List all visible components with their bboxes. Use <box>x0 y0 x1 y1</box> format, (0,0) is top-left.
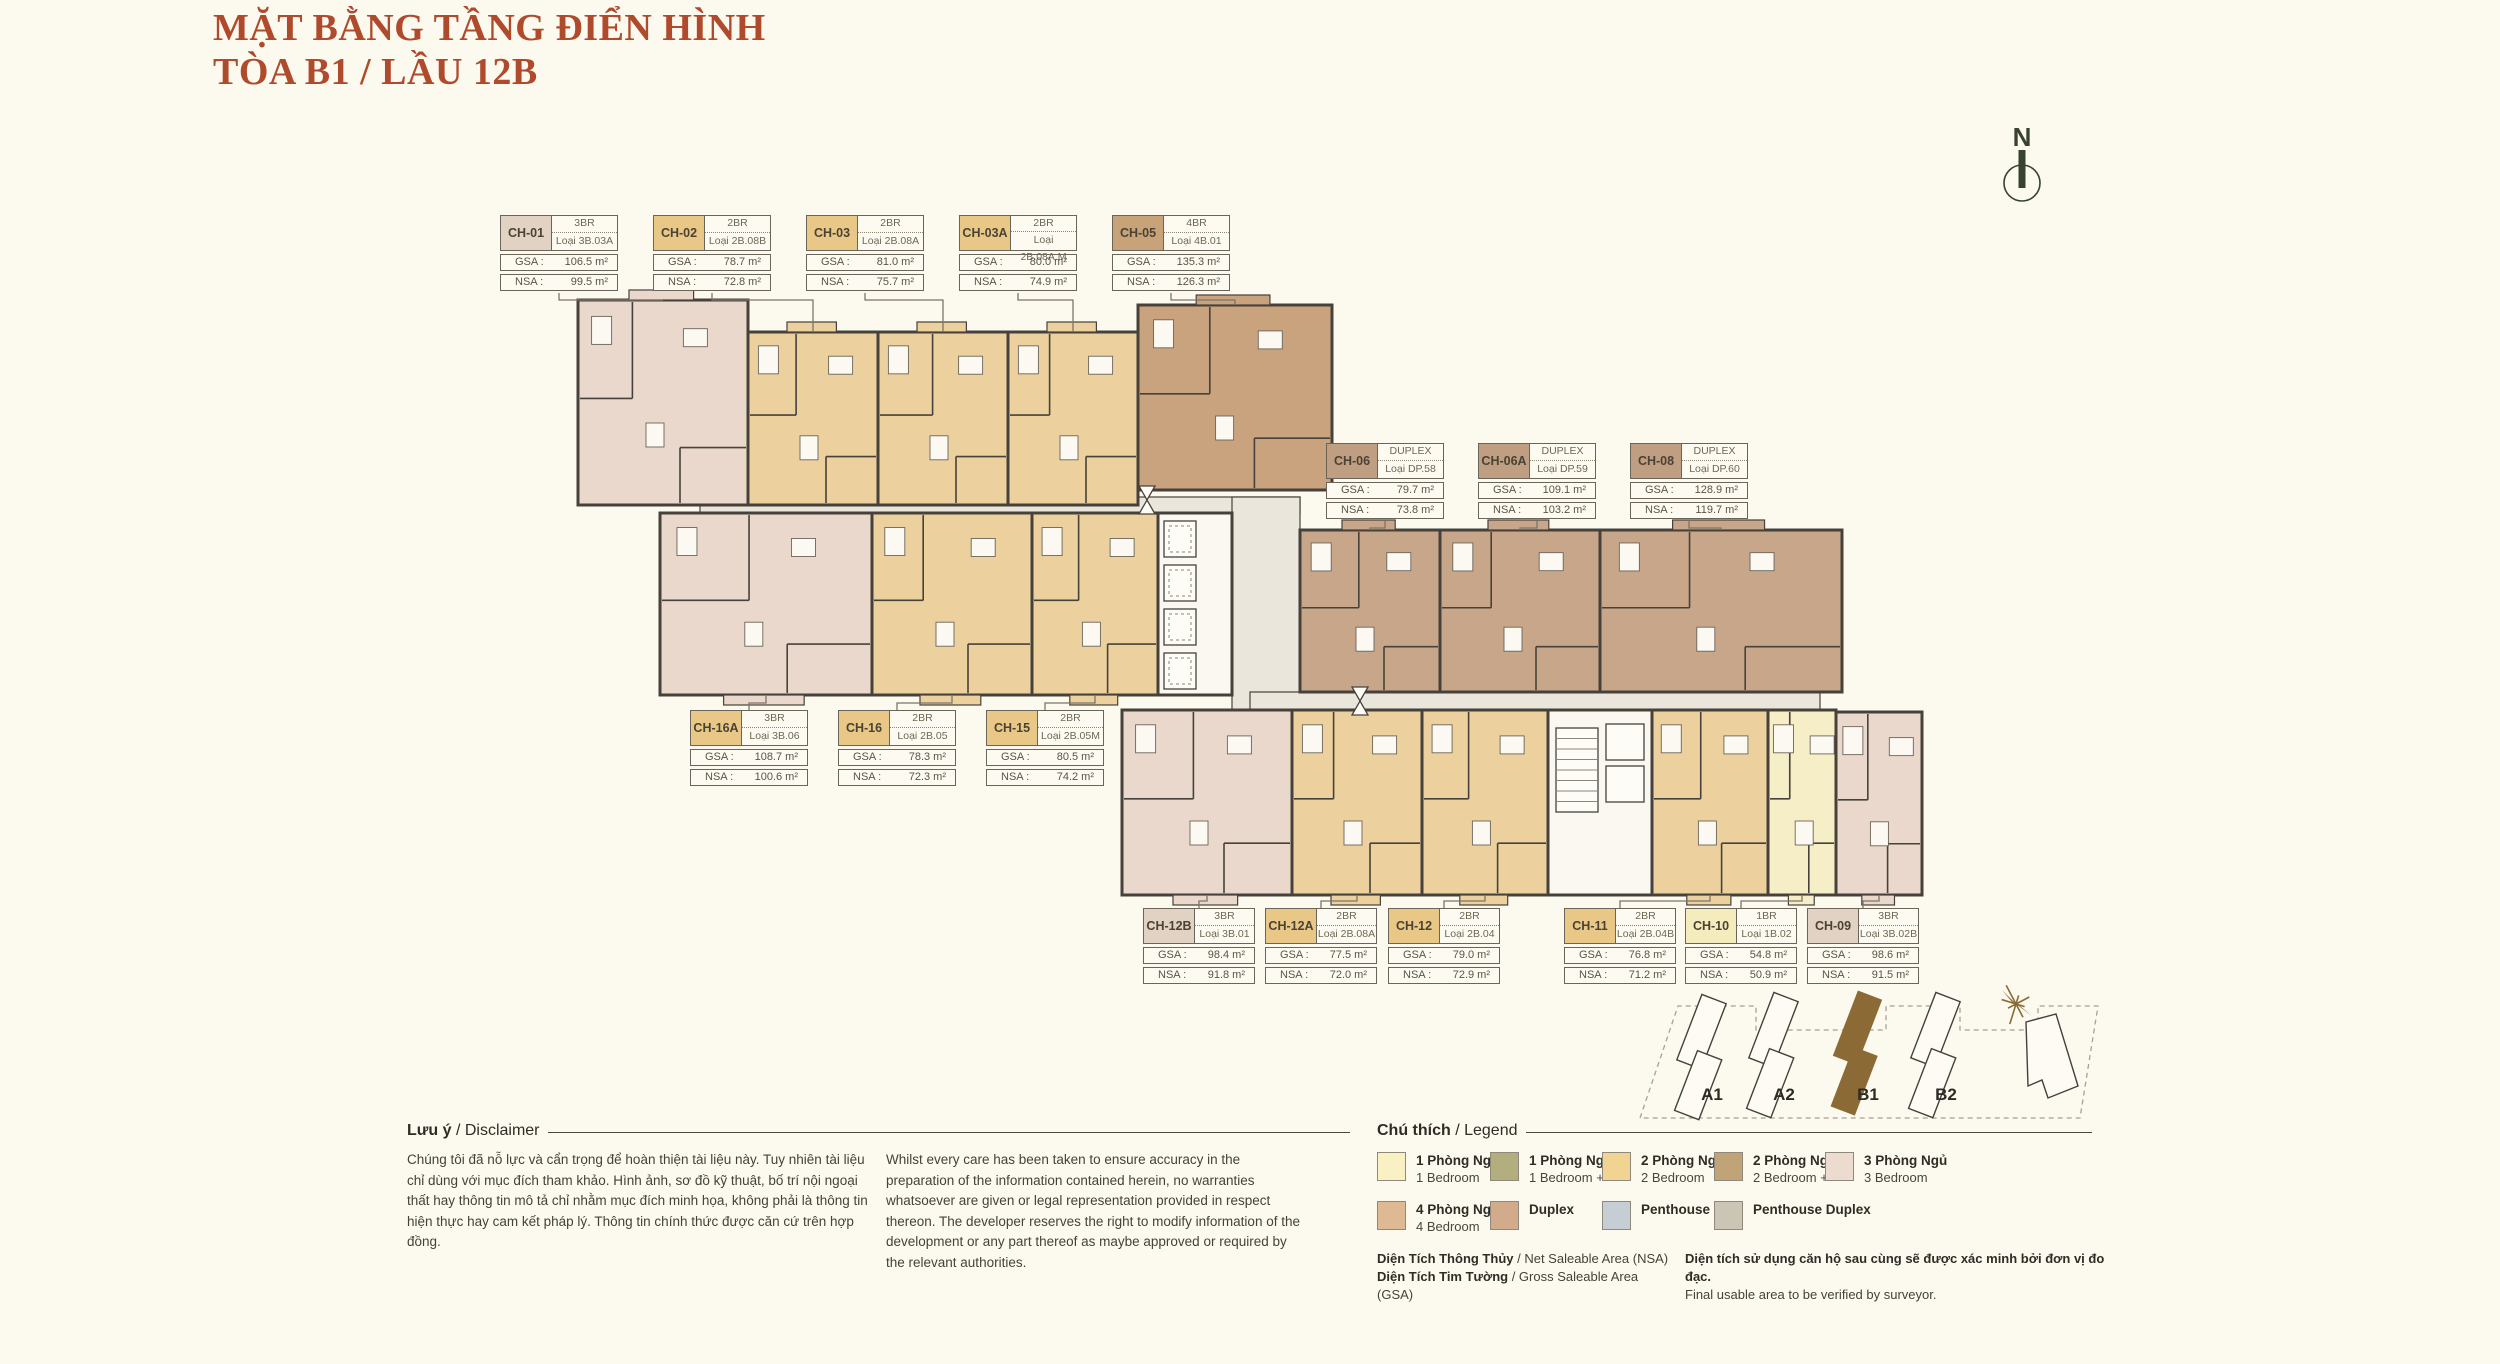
unit-CH-12 <box>1422 710 1548 905</box>
unit-CH-06 <box>1300 520 1440 692</box>
north-label: N <box>2013 122 2032 152</box>
nsa-row: NSA :91.8 m² <box>1143 967 1255 984</box>
disclaimer-title-vn: Lưu ý <box>407 1122 451 1139</box>
unit-card-CH-16: CH-16 2BR Loại 2B.05 GSA :78.3 m² NSA :7… <box>838 710 956 789</box>
card-header: CH-12B 3BR Loại 3B.01 <box>1143 908 1255 944</box>
unit-loai: Loại 2B.05 <box>890 728 955 745</box>
gsa-row: GSA :54.8 m² <box>1685 947 1797 964</box>
legend-item-penthouse-duplex: Penthouse Duplex <box>1714 1201 1871 1230</box>
unit-type: 1BR <box>1737 909 1796 926</box>
unit-id: CH-16 <box>839 711 890 745</box>
unit-id: CH-09 <box>1808 909 1859 943</box>
gsa-value: 109.1 m² <box>1543 483 1586 498</box>
unit-id: CH-15 <box>987 711 1038 745</box>
disclaimer-title-en: / Disclaimer <box>456 1122 540 1139</box>
legend-swatch <box>1490 1201 1519 1230</box>
unit-card-CH-12B: CH-12B 3BR Loại 3B.01 GSA :98.4 m² NSA :… <box>1143 908 1255 987</box>
unit-CH-09 <box>1836 712 1922 905</box>
unit-id: CH-16A <box>691 711 742 745</box>
unit-card-CH-01: CH-01 3BR Loại 3B.03A GSA :106.5 m² NSA … <box>500 215 618 294</box>
legend-label: Penthouse <box>1641 1201 1710 1230</box>
legend-swatch <box>1714 1152 1743 1181</box>
nsa-row: NSA :72.3 m² <box>838 769 956 786</box>
unit-id: CH-10 <box>1686 909 1737 943</box>
unit-type: DUPLEX <box>1378 444 1443 461</box>
gsa-value: 79.7 m² <box>1397 483 1434 498</box>
gsa-row: GSA :98.6 m² <box>1807 947 1919 964</box>
gsa-value: 78.3 m² <box>909 750 946 765</box>
legend-item-2-phòng-ngủ: 2 Phòng Ngủ2 Bedroom <box>1602 1152 1724 1187</box>
unit-loai: Loại 3B.06 <box>742 728 807 745</box>
legend-item-penthouse: Penthouse <box>1602 1201 1710 1230</box>
nsa-term: Diện Tích Thông Thủy <box>1377 1251 1514 1266</box>
nsa-row: NSA :74.2 m² <box>986 769 1104 786</box>
gsa-row: GSA :78.3 m² <box>838 749 956 766</box>
unit-CH-02 <box>748 322 878 505</box>
legend-heading: Chú thích / Legend <box>1377 1122 2092 1140</box>
nsa-value: 73.8 m² <box>1397 503 1434 518</box>
legend-label: Penthouse Duplex <box>1753 1201 1871 1230</box>
legend-item-3-phòng-ngủ: 3 Phòng Ngủ3 Bedroom <box>1825 1152 1947 1187</box>
unit-CH-03 <box>878 322 1008 505</box>
unit-type: 2BR <box>1011 216 1076 232</box>
gsa-value: 98.4 m² <box>1208 948 1245 963</box>
gsa-definition: Diện Tích Tim Tường / Gross Saleable Are… <box>1377 1268 1677 1304</box>
unit-type: 4BR <box>1164 216 1229 233</box>
nsa-value: 75.7 m² <box>877 275 914 290</box>
gsa-row: GSA :77.5 m² <box>1265 947 1377 964</box>
gsa-value: 80.5 m² <box>1057 750 1094 765</box>
legend-label: Duplex <box>1529 1201 1574 1230</box>
unit-id: CH-11 <box>1565 909 1616 943</box>
card-header: CH-16A 3BR Loại 3B.06 <box>690 710 808 746</box>
unit-loai: Loại DP.59 <box>1530 461 1595 478</box>
nsa-value: 71.2 m² <box>1629 968 1666 983</box>
gsa-row: GSA :76.8 m² <box>1564 947 1676 964</box>
card-header: CH-09 3BR Loại 3B.02B <box>1807 908 1919 944</box>
brochure-page: { "title": {"line1": "MẶT BẰNG TẦNG ĐIỂN… <box>0 0 2500 1364</box>
nsa-term-en: / Net Saleable Area (NSA) <box>1514 1251 1669 1266</box>
nsa-value: 74.9 m² <box>1030 275 1067 290</box>
legend-title-vn: Chú thích <box>1377 1122 1451 1139</box>
gsa-value: 128.9 m² <box>1695 483 1738 498</box>
gsa-row: GSA :109.1 m² <box>1478 482 1596 499</box>
gsa-value: 108.7 m² <box>755 750 798 765</box>
unit-card-CH-06A: CH-06A DUPLEX Loại DP.59 GSA :109.1 m² N… <box>1478 443 1596 522</box>
legend-label: 3 Phòng Ngủ3 Bedroom <box>1864 1152 1947 1187</box>
site-map: A1 A2 B1 B2 <box>1640 985 2098 1119</box>
legend-label: 2 Phòng Ngủ2 Bedroom <box>1641 1152 1724 1187</box>
unit-loai: Loại 2B.05M <box>1038 728 1103 745</box>
unit-type: 3BR <box>742 711 807 728</box>
legend-rule <box>1526 1132 2093 1133</box>
nsa-value: 72.8 m² <box>724 275 761 290</box>
unit-card-CH-02: CH-02 2BR Loại 2B.08B GSA :78.7 m² NSA :… <box>653 215 771 294</box>
survey-note-vn: Diện tích sử dụng căn hộ sau cùng sẽ đượ… <box>1685 1250 2105 1286</box>
unit-CH-12A <box>1292 710 1422 905</box>
nsa-row: NSA :72.9 m² <box>1388 967 1500 984</box>
unit-loai: Loại DP.58 <box>1378 461 1443 478</box>
nsa-row: NSA :126.3 m² <box>1112 274 1230 291</box>
site-building-label: B1 <box>1857 1085 1879 1104</box>
gsa-row: GSA :79.0 m² <box>1388 947 1500 964</box>
site-compass-icon <box>2002 985 2032 1024</box>
gsa-value: 135.3 m² <box>1177 255 1220 270</box>
gsa-value: 106.5 m² <box>565 255 608 270</box>
survey-note-en: Final usable area to be verified by surv… <box>1685 1286 2105 1304</box>
unit-CH-08 <box>1600 520 1842 692</box>
unit-CH-03A <box>1008 322 1138 505</box>
gsa-row: GSA :106.5 m² <box>500 254 618 271</box>
unit-loai: Loại 2B.08A <box>1317 926 1376 943</box>
gsa-value: 54.8 m² <box>1750 948 1787 963</box>
legend-swatch <box>1490 1152 1519 1181</box>
gsa-value: 77.5 m² <box>1330 948 1367 963</box>
legend-swatch <box>1377 1152 1406 1181</box>
legend-item-duplex: Duplex <box>1490 1201 1574 1230</box>
card-header: CH-06A DUPLEX Loại DP.59 <box>1478 443 1596 479</box>
nsa-row: NSA :72.8 m² <box>653 274 771 291</box>
unit-CH-11 <box>1652 710 1768 905</box>
unit-loai: Loại 1B.02 <box>1737 926 1796 943</box>
gsa-row: GSA :80.5 m² <box>986 749 1104 766</box>
unit-card-CH-05: CH-05 4BR Loại 4B.01 GSA :135.3 m² NSA :… <box>1112 215 1230 294</box>
unit-id: CH-06 <box>1327 444 1378 478</box>
unit-type: 2BR <box>890 711 955 728</box>
card-header: CH-16 2BR Loại 2B.05 <box>838 710 956 746</box>
unit-card-CH-11: CH-11 2BR Loại 2B.04B GSA :76.8 m² NSA :… <box>1564 908 1676 987</box>
nsa-definition: Diện Tích Thông Thủy / Net Saleable Area… <box>1377 1250 1677 1268</box>
unit-loai: Loại DP.60 <box>1682 461 1747 478</box>
unit-type: 2BR <box>1038 711 1103 728</box>
disclaimer-text-vn: Chúng tôi đã nỗ lực và cẩn trọng để hoàn… <box>407 1150 873 1253</box>
gsa-row: GSA :81.0 m² <box>806 254 924 271</box>
unit-id: CH-12 <box>1389 909 1440 943</box>
unit-type: 2BR <box>858 216 923 233</box>
nsa-row: NSA :75.7 m² <box>806 274 924 291</box>
gsa-row: GSA :135.3 m² <box>1112 254 1230 271</box>
disclaimer-rule <box>548 1132 1351 1133</box>
disclaimer-heading: Lưu ý / Disclaimer <box>407 1122 1350 1140</box>
nsa-value: 126.3 m² <box>1177 275 1220 290</box>
gsa-row: GSA :78.7 m² <box>653 254 771 271</box>
nsa-row: NSA :99.5 m² <box>500 274 618 291</box>
nsa-value: 91.8 m² <box>1208 968 1245 983</box>
card-header: CH-01 3BR Loại 3B.03A <box>500 215 618 251</box>
gsa-term: Diện Tích Tim Tường <box>1377 1269 1508 1284</box>
site-building-label: A2 <box>1773 1085 1795 1104</box>
nsa-value: 91.5 m² <box>1872 968 1909 983</box>
unit-loai: Loại 4B.01 <box>1164 233 1229 250</box>
unit-type: DUPLEX <box>1530 444 1595 461</box>
gsa-value: 81.0 m² <box>877 255 914 270</box>
nsa-value: 50.9 m² <box>1750 968 1787 983</box>
unit-loai: Loại 2B.08B <box>705 233 770 250</box>
unit-type: 2BR <box>1616 909 1675 926</box>
stair-core <box>1548 710 1652 895</box>
card-header: CH-08 DUPLEX Loại DP.60 <box>1630 443 1748 479</box>
gsa-row: GSA :79.7 m² <box>1326 482 1444 499</box>
unit-CH-16A <box>660 513 872 705</box>
nsa-row: NSA :72.0 m² <box>1265 967 1377 984</box>
card-header: CH-11 2BR Loại 2B.04B <box>1564 908 1676 944</box>
legend-swatch <box>1825 1152 1854 1181</box>
nsa-value: 72.0 m² <box>1330 968 1367 983</box>
unit-CH-10 <box>1768 710 1836 905</box>
legend-label: 1 Phòng Ngủ1 Bedroom <box>1416 1152 1499 1187</box>
unit-id: CH-12A <box>1266 909 1317 943</box>
nsa-row: NSA :74.9 m² <box>959 274 1077 291</box>
nsa-value: 103.2 m² <box>1543 503 1586 518</box>
card-header: CH-15 2BR Loại 2B.05M <box>986 710 1104 746</box>
unit-id: CH-08 <box>1631 444 1682 478</box>
gsa-value: 80.0 m² <box>1030 255 1067 270</box>
unit-id: CH-06A <box>1479 444 1530 478</box>
unit-card-CH-03: CH-03 2BR Loại 2B.08A GSA :81.0 m² NSA :… <box>806 215 924 294</box>
legend-title-en: / Legend <box>1455 1122 1517 1139</box>
nsa-row: NSA :100.6 m² <box>690 769 808 786</box>
unit-type: DUPLEX <box>1682 444 1747 461</box>
unit-loai: Loại 3B.02B <box>1859 926 1918 943</box>
site-building-label: A1 <box>1701 1085 1723 1104</box>
unit-CH-15 <box>1032 513 1158 705</box>
gsa-row: GSA :98.4 m² <box>1143 947 1255 964</box>
nsa-value: 99.5 m² <box>571 275 608 290</box>
unit-type: 3BR <box>1859 909 1918 926</box>
nsa-row: NSA :50.9 m² <box>1685 967 1797 984</box>
unit-loai: Loại 3B.03A <box>552 233 617 250</box>
nsa-row: NSA :71.2 m² <box>1564 967 1676 984</box>
unit-loai: Loại 2B.08A <box>858 233 923 250</box>
nsa-value: 74.2 m² <box>1057 770 1094 785</box>
unit-CH-05 <box>1138 295 1332 490</box>
nsa-row: NSA :91.5 m² <box>1807 967 1919 984</box>
unit-card-CH-16A: CH-16A 3BR Loại 3B.06 GSA :108.7 m² NSA … <box>690 710 808 789</box>
nsa-row: NSA :73.8 m² <box>1326 502 1444 519</box>
card-header: CH-10 1BR Loại 1B.02 <box>1685 908 1797 944</box>
legend-swatch <box>1602 1201 1631 1230</box>
unit-card-CH-12: CH-12 2BR Loại 2B.04 GSA :79.0 m² NSA :7… <box>1388 908 1500 987</box>
nsa-value: 72.9 m² <box>1453 968 1490 983</box>
legend-item-4-phòng-ngủ: 4 Phòng Ngủ4 Bedroom <box>1377 1201 1499 1236</box>
unit-type: 2BR <box>705 216 770 233</box>
disclaimer-text-en: Whilst every care has been taken to ensu… <box>886 1150 1300 1273</box>
unit-card-CH-09: CH-09 3BR Loại 3B.02B GSA :98.6 m² NSA :… <box>1807 908 1919 987</box>
card-header: CH-12 2BR Loại 2B.04 <box>1388 908 1500 944</box>
site-building-unlabeled <box>2026 1014 2078 1098</box>
unit-type: 2BR <box>1440 909 1499 926</box>
unit-card-CH-03A: CH-03A 2BR Loại 2B.08A.M GSA :80.0 m² NS… <box>959 215 1077 294</box>
nsa-value: 119.7 m² <box>1695 503 1738 518</box>
nsa-value: 72.3 m² <box>909 770 946 785</box>
legend-swatch <box>1377 1201 1406 1230</box>
card-header: CH-03 2BR Loại 2B.08A <box>806 215 924 251</box>
unit-card-CH-10: CH-10 1BR Loại 1B.02 GSA :54.8 m² NSA :5… <box>1685 908 1797 987</box>
area-definitions: Diện Tích Thông Thủy / Net Saleable Area… <box>1377 1250 1677 1305</box>
legend-label: 4 Phòng Ngủ4 Bedroom <box>1416 1201 1499 1236</box>
card-header: CH-03A 2BR Loại 2B.08A.M <box>959 215 1077 251</box>
gsa-value: 76.8 m² <box>1629 948 1666 963</box>
legend-swatch <box>1714 1201 1743 1230</box>
unit-loai: Loại 3B.01 <box>1195 926 1254 943</box>
nsa-row: NSA :103.2 m² <box>1478 502 1596 519</box>
card-header: CH-05 4BR Loại 4B.01 <box>1112 215 1230 251</box>
card-header: CH-06 DUPLEX Loại DP.58 <box>1326 443 1444 479</box>
unit-loai: Loại 2B.04B <box>1616 926 1675 943</box>
gsa-row: GSA :108.7 m² <box>690 749 808 766</box>
legend-swatch <box>1602 1152 1631 1181</box>
unit-CH-12B <box>1122 710 1292 905</box>
survey-note: Diện tích sử dụng căn hộ sau cùng sẽ đượ… <box>1685 1250 2105 1305</box>
unit-CH-06A <box>1440 520 1600 692</box>
gsa-value: 79.0 m² <box>1453 948 1490 963</box>
unit-id: CH-05 <box>1113 216 1164 250</box>
gsa-value: 78.7 m² <box>724 255 761 270</box>
unit-id: CH-12B <box>1144 909 1195 943</box>
unit-type: 3BR <box>1195 909 1254 926</box>
nsa-value: 100.6 m² <box>755 770 798 785</box>
elevator-core <box>1158 513 1232 695</box>
north-indicator: N <box>2004 122 2040 201</box>
nsa-row: NSA :119.7 m² <box>1630 502 1748 519</box>
unit-CH-01 <box>578 290 748 505</box>
unit-id: CH-03 <box>807 216 858 250</box>
site-building-label: B2 <box>1935 1085 1957 1104</box>
gsa-row: GSA :128.9 m² <box>1630 482 1748 499</box>
unit-card-CH-06: CH-06 DUPLEX Loại DP.58 GSA :79.7 m² NSA… <box>1326 443 1444 522</box>
unit-type: 2BR <box>1317 909 1376 926</box>
gsa-value: 98.6 m² <box>1872 948 1909 963</box>
unit-id: CH-01 <box>501 216 552 250</box>
unit-id: CH-03A <box>960 216 1011 250</box>
card-header: CH-12A 2BR Loại 2B.08A <box>1265 908 1377 944</box>
compass-needle <box>2019 150 2026 188</box>
unit-CH-16 <box>872 513 1032 705</box>
unit-id: CH-02 <box>654 216 705 250</box>
unit-card-CH-15: CH-15 2BR Loại 2B.05M GSA :80.5 m² NSA :… <box>986 710 1104 789</box>
unit-card-CH-08: CH-08 DUPLEX Loại DP.60 GSA :128.9 m² NS… <box>1630 443 1748 522</box>
unit-card-CH-12A: CH-12A 2BR Loại 2B.08A GSA :77.5 m² NSA … <box>1265 908 1377 987</box>
card-header: CH-02 2BR Loại 2B.08B <box>653 215 771 251</box>
legend-item-1-phòng-ngủ: 1 Phòng Ngủ1 Bedroom <box>1377 1152 1499 1187</box>
unit-type: 3BR <box>552 216 617 233</box>
unit-loai: Loại 2B.04 <box>1440 926 1499 943</box>
